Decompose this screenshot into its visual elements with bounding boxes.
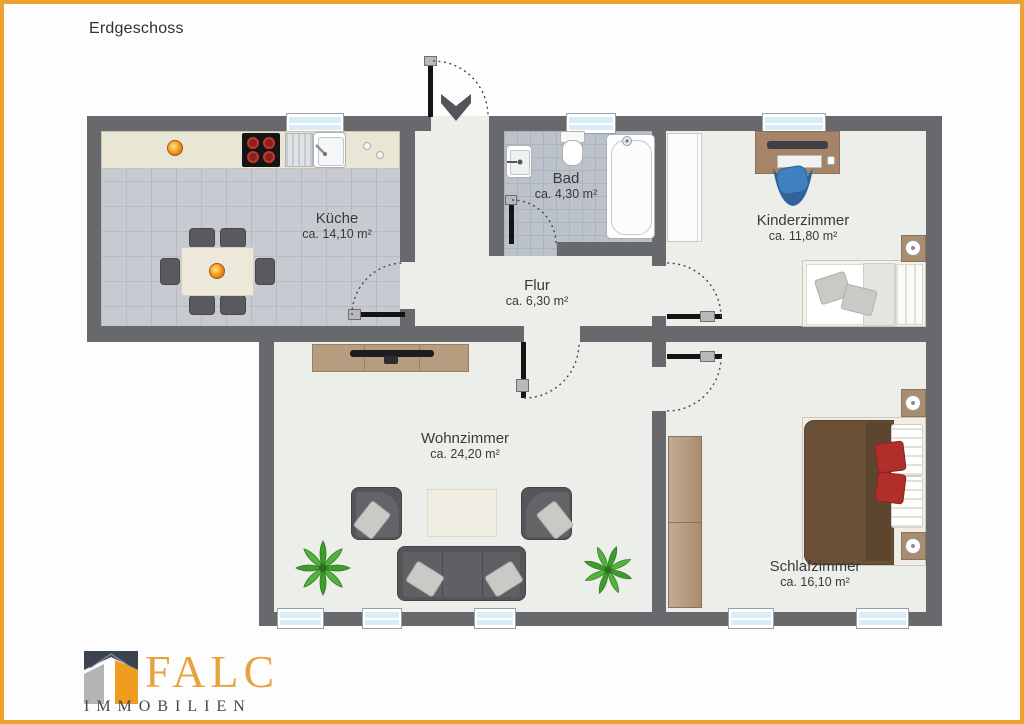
kueche-door-threshold: [400, 262, 415, 314]
room-label-kinderzimmer: Kinderzimmer ca. 11,80 m²: [757, 212, 850, 244]
armchair: [521, 487, 572, 540]
dining-chair: [189, 295, 215, 315]
wall-kueche-right: [400, 116, 415, 262]
wardrobe: [667, 133, 702, 242]
wall-center-stub: [652, 316, 666, 367]
wall-kueche-bottom: [87, 326, 524, 342]
entrance-opening: [431, 116, 489, 131]
washbasin: [506, 145, 532, 178]
room-label-flur: Flur ca. 6,30 m²: [506, 277, 569, 309]
wall-mid-horizontal: [580, 326, 942, 342]
window: [728, 608, 774, 629]
desk: [755, 131, 840, 174]
cooktop: [242, 133, 280, 167]
room-label-schlafzimmer: Schlafzimmer ca. 16,10 m²: [770, 558, 861, 590]
dining-chair: [220, 295, 246, 315]
hob-knob: [376, 151, 384, 159]
tv-sideboard: [312, 344, 469, 372]
room-label-bad: Bad ca. 4,30 m²: [535, 170, 598, 202]
window: [277, 608, 324, 629]
wall-center-lower: [652, 411, 666, 626]
door-handle: [700, 311, 715, 322]
door-handle: [424, 56, 437, 66]
sink-drainboard: [285, 133, 313, 167]
decor-bowl: [167, 140, 183, 156]
entrance-door-leaf: [428, 59, 433, 117]
lamp: [905, 538, 921, 554]
room-label-wohnzimmer: Wohnzimmer ca. 24,20 m²: [421, 430, 509, 462]
window: [474, 608, 516, 629]
armchair: [351, 487, 402, 540]
dining-chair: [189, 228, 215, 248]
page-title: Erdgeschoss: [89, 20, 184, 38]
door-handle: [700, 351, 715, 362]
wardrobe: [668, 436, 702, 608]
decor-bowl: [209, 263, 225, 279]
lamp: [905, 395, 921, 411]
hob-knob: [363, 142, 371, 150]
wall-right: [926, 116, 942, 626]
door-handle: [348, 309, 361, 320]
kitchen-sink: [313, 132, 346, 168]
toilet: [562, 140, 583, 166]
wall-bad-bottom: [557, 242, 666, 256]
logo-brand-text: FALC: [145, 648, 279, 696]
floor-plan-page: Erdgeschoss: [0, 0, 1024, 724]
door-handle: [516, 379, 529, 392]
single-bed: [802, 260, 926, 327]
coffee-table-rug: [427, 489, 497, 537]
room-label-kueche: Küche ca. 14,10 m²: [302, 210, 371, 242]
dining-chair: [220, 228, 246, 248]
dining-chair: [160, 258, 180, 285]
window: [362, 608, 402, 629]
sofa: [397, 546, 526, 601]
wall-left: [87, 116, 101, 342]
door-handle: [505, 195, 517, 205]
logo-subtitle: IMMOBILIEN: [84, 698, 252, 716]
lamp: [905, 240, 921, 256]
bathtub: [606, 134, 655, 239]
wall-bad-left: [489, 116, 504, 256]
dining-chair: [255, 258, 275, 285]
wall-wohnzimmer-left: [259, 326, 274, 626]
window: [856, 608, 909, 629]
